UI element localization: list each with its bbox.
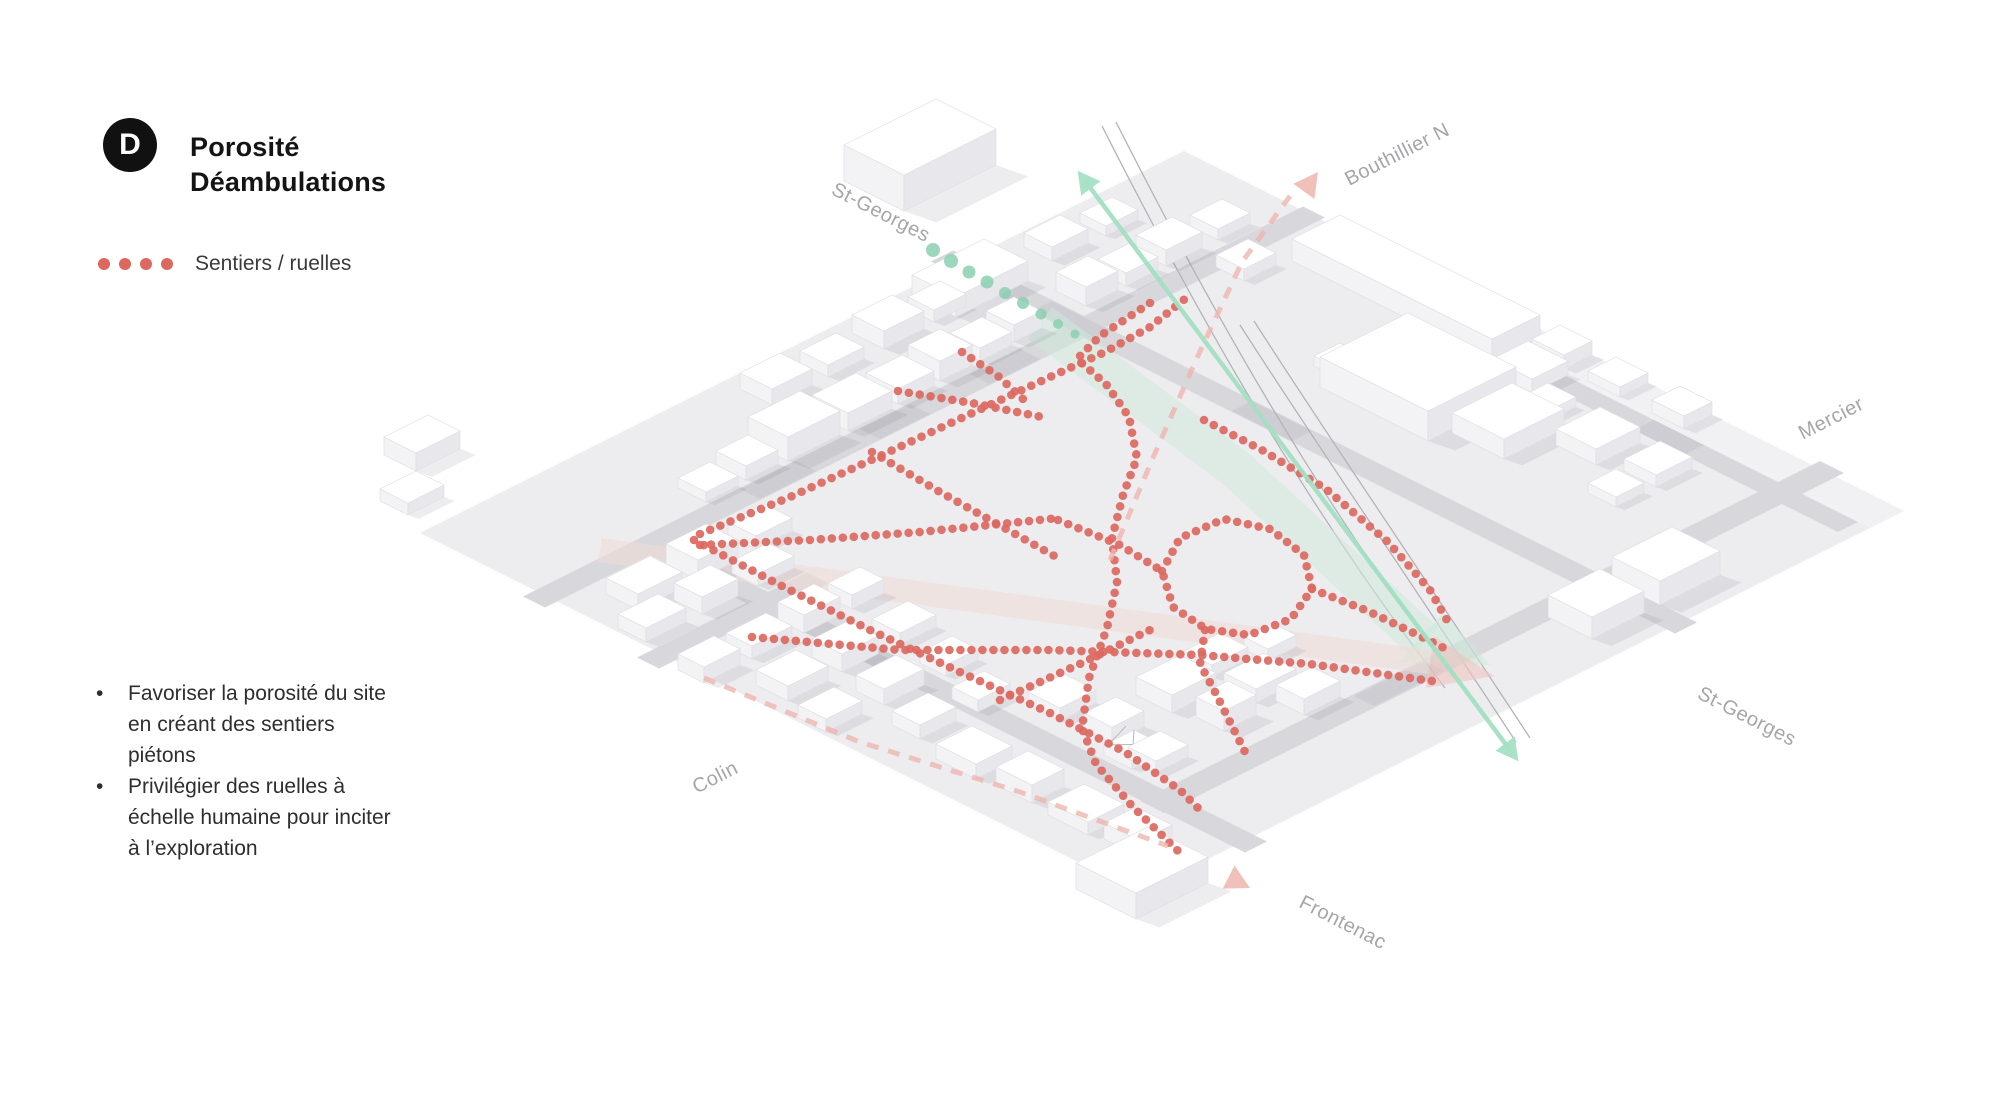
sentier-dotted-path xyxy=(1275,657,1284,666)
sentier-dotted-path xyxy=(1128,428,1137,437)
sentier-dotted-path xyxy=(1126,800,1135,809)
sentier-dotted-path xyxy=(1180,295,1189,304)
sentier-dotted-path xyxy=(1235,737,1244,746)
sentier-dotted-path xyxy=(882,530,891,539)
sentier-dotted-path xyxy=(707,540,716,549)
sentier-dotted-path xyxy=(817,478,826,487)
sentier-dotted-path xyxy=(866,626,875,635)
sentier-dotted-path xyxy=(893,529,902,538)
sentier-dotted-path xyxy=(802,638,811,647)
sentier-dotted-path xyxy=(781,636,790,645)
sentier-dotted-path xyxy=(1338,597,1347,606)
sentier-dotted-path xyxy=(860,532,869,541)
sentier-dotted-path xyxy=(890,645,899,654)
sentier-dotted-path xyxy=(1404,561,1413,570)
sentier-dotted-path xyxy=(1253,655,1262,664)
sentier-dotted-path xyxy=(1112,783,1121,792)
sentier-dotted-path xyxy=(1082,694,1091,703)
sentier-dotted-path xyxy=(1212,518,1221,527)
sentier-dotted-path xyxy=(1281,617,1290,626)
sentier-dotted-path xyxy=(1369,609,1378,618)
teal-path-dot xyxy=(999,287,1011,299)
sentier-dotted-path xyxy=(806,536,815,545)
sentier-dotted-path xyxy=(1057,368,1066,377)
sentier-dotted-path xyxy=(1104,739,1113,748)
sentier-dotted-path xyxy=(947,418,956,427)
sentier-dotted-path xyxy=(1229,431,1238,440)
sentier-dotted-path xyxy=(1230,727,1239,736)
sentier-dotted-path xyxy=(1121,648,1130,657)
sentier-dotted-path xyxy=(1126,418,1135,427)
sentier-dotted-path xyxy=(1271,621,1280,630)
sentier-dotted-path xyxy=(1091,758,1100,767)
sentier-dotted-path xyxy=(1047,372,1056,381)
street-label-colin: Colin xyxy=(689,757,742,798)
sentier-dotted-path xyxy=(1134,808,1143,817)
sentier-dotted-path xyxy=(956,646,965,655)
sentier-dotted-path xyxy=(787,586,796,595)
sentier-dotted-path xyxy=(1340,665,1349,674)
sentier-dotted-path xyxy=(1086,655,1095,664)
sentier-dotted-path xyxy=(1091,336,1100,345)
sentier-dotted-path xyxy=(1077,647,1086,656)
sentier-dotted-path xyxy=(1244,520,1253,529)
sentier-dotted-path xyxy=(1078,359,1087,368)
sentier-dotted-path xyxy=(1030,540,1039,549)
sentier-dotted-path xyxy=(1022,646,1031,655)
note-item: • Favoriser la porosité du site en créan… xyxy=(96,678,396,771)
sentier-dotted-path xyxy=(1225,717,1234,726)
sentier-dotted-path xyxy=(1173,846,1182,855)
sentier-dotted-path xyxy=(976,677,985,686)
sentier-dotted-path xyxy=(912,646,921,655)
sentier-dotted-path xyxy=(901,646,910,655)
sentier-dotted-path xyxy=(1286,463,1295,472)
sentier-dotted-path xyxy=(959,523,968,532)
sentier-dotted-path xyxy=(1192,527,1201,536)
sentier-dotted-path xyxy=(981,521,990,530)
sentier-dotted-path xyxy=(1066,664,1075,673)
sentier-dotted-path xyxy=(797,487,806,496)
teal-path-dot xyxy=(1071,330,1080,339)
sentier-dotted-path xyxy=(777,582,786,591)
sentier-dotted-path xyxy=(807,483,816,492)
sentier-dotted-path xyxy=(1116,339,1125,348)
sentier-dotted-path xyxy=(976,360,985,369)
sentier-dotted-path xyxy=(1126,334,1135,343)
sentier-dotted-path xyxy=(1046,709,1055,718)
sentier-dotted-path xyxy=(1169,781,1178,790)
sentier-dotted-path xyxy=(849,533,858,542)
sentier-dotted-path xyxy=(1097,349,1106,358)
sentier-dotted-path xyxy=(1133,756,1142,765)
sentier-dotted-path xyxy=(1159,572,1168,581)
sentier-dotted-path xyxy=(1016,695,1025,704)
sentier-dotted-path xyxy=(1049,551,1058,560)
sentier-dotted-path xyxy=(1196,658,1205,667)
sentier-dotted-path xyxy=(1162,309,1171,318)
sentier-dotted-path xyxy=(757,505,766,514)
sentier-dotted-path xyxy=(1085,673,1094,682)
sentier-dotted-path xyxy=(1109,390,1118,399)
sentier-dotted-path xyxy=(828,534,837,543)
sentier-dotted-path xyxy=(1000,646,1009,655)
sentier-dotted-path xyxy=(846,641,855,650)
sentier-dotted-path xyxy=(1145,626,1154,635)
sentier-dotted-path xyxy=(807,596,816,605)
note-text: Privilégier des ruelles à échelle humain… xyxy=(128,771,396,864)
slide: D Porosité Déambulations Sentiers / ruel… xyxy=(0,0,2000,1104)
sentier-dotted-path xyxy=(1016,687,1025,696)
sentier-dotted-path xyxy=(1011,530,1020,539)
sentier-dotted-path xyxy=(1143,649,1152,658)
sentier-dotted-path xyxy=(970,522,979,531)
sentier-dotted-path xyxy=(1197,647,1206,656)
street-label-st-georges-bottom: St-Georges xyxy=(1694,683,1800,751)
sentier-dotted-path xyxy=(1105,775,1114,784)
sentier-dotted-path xyxy=(836,611,845,620)
street-label-mercier: Mercier xyxy=(1795,393,1868,444)
sentier-dotted-path xyxy=(915,528,924,537)
sentier-dotted-path xyxy=(1014,518,1023,527)
sentier-dotted-path xyxy=(1406,674,1415,683)
sentier-dotted-path xyxy=(937,394,946,403)
sentier-dotted-path xyxy=(718,540,727,549)
sentier-dotted-path xyxy=(1026,682,1035,691)
sentier-dotted-path xyxy=(1357,515,1366,524)
sentier-dotted-path xyxy=(1065,719,1074,728)
sentier-dotted-path xyxy=(1268,452,1277,461)
sentier-dotted-path xyxy=(1240,630,1249,639)
sentier-dotted-path xyxy=(1110,523,1119,532)
sentier-dotted-path xyxy=(1044,646,1053,655)
teal-path-dot xyxy=(1053,319,1063,329)
sentier-dotted-path xyxy=(1442,615,1451,624)
sentier-dotted-path xyxy=(1087,747,1096,756)
sentier-dotted-path xyxy=(1084,344,1093,353)
sentier-dotted-path xyxy=(1084,528,1093,537)
sentier-dotted-path xyxy=(1258,446,1267,455)
sentier-dotted-path xyxy=(1328,593,1337,602)
sentier-dotted-path xyxy=(1152,563,1161,572)
sentier-dotted-path xyxy=(827,606,836,615)
dotted-path-icon xyxy=(98,258,173,270)
green-arrowhead-icon xyxy=(1496,736,1519,761)
sentier-dotted-path xyxy=(777,496,786,505)
sentier-dotted-path xyxy=(970,399,979,408)
sentier-dotted-path xyxy=(1374,529,1383,538)
sentier-dotted-path xyxy=(1115,540,1124,549)
sentier-dotted-path xyxy=(1242,654,1251,663)
sentier-dotted-path xyxy=(1124,546,1133,555)
sentier-dotted-path xyxy=(1286,658,1295,667)
sentier-dotted-path xyxy=(784,537,793,546)
sentier-dotted-path xyxy=(1025,517,1034,526)
sentier-dotted-path xyxy=(1106,610,1115,619)
sentier-dotted-path xyxy=(1109,323,1118,332)
teal-path-dot xyxy=(981,276,994,289)
sentier-dotted-path xyxy=(1362,668,1371,677)
sentier-dotted-path xyxy=(1124,750,1133,759)
sentier-dotted-path xyxy=(1064,520,1073,529)
sentier-dotted-path xyxy=(1115,399,1124,408)
sentier-dotted-path xyxy=(996,686,1005,695)
sentier-dotted-path xyxy=(1037,377,1046,386)
sentier-dotted-path xyxy=(857,460,866,469)
sentier-dotted-path xyxy=(1231,654,1240,663)
sentier-dotted-path xyxy=(1136,328,1145,337)
sentier-dotted-path xyxy=(1027,381,1036,390)
sentier-dotted-path xyxy=(927,428,936,437)
sentier-dotted-path xyxy=(1160,775,1169,784)
sentier-dotted-path xyxy=(1218,627,1227,636)
sentier-dotted-path xyxy=(846,616,855,625)
sentier-dotted-path xyxy=(716,521,725,530)
sentier-dotted-path xyxy=(1067,363,1076,372)
sentier-dotted-path xyxy=(787,492,796,501)
sentier-dotted-path xyxy=(963,503,972,512)
sentier-dotted-path xyxy=(1419,578,1428,587)
sentier-dotted-path xyxy=(1250,629,1259,638)
sentier-dotted-path xyxy=(1188,615,1197,624)
sentier-dotted-path xyxy=(871,531,880,540)
sentier-dotted-path xyxy=(747,509,756,518)
sentier-dotted-path xyxy=(1089,662,1098,671)
sentier-dotted-path xyxy=(1166,593,1175,602)
sentier-dotted-path xyxy=(948,396,957,405)
sentier-dotted-path xyxy=(729,539,738,548)
sentier-dotted-path xyxy=(986,681,995,690)
sentier-dotted-path xyxy=(1126,471,1135,480)
sentier-dotted-path xyxy=(967,409,976,418)
sentier-dotted-path xyxy=(1373,669,1382,678)
sentier-dotted-path xyxy=(1349,508,1358,517)
sentier-dotted-path xyxy=(1431,596,1440,605)
sentier-dotted-path xyxy=(817,601,826,610)
sentier-dotted-path xyxy=(1222,515,1231,524)
sentier-dotted-path xyxy=(868,643,877,652)
sentier-dotted-path xyxy=(1010,387,1019,396)
sentier-dotted-path xyxy=(1296,602,1305,611)
sentier-dotted-path xyxy=(1079,727,1088,736)
sentier-dotted-path xyxy=(1274,531,1283,540)
sentier-dotted-path xyxy=(972,508,981,517)
sentier-dotted-path xyxy=(1209,421,1218,430)
sentier-dotted-path xyxy=(1018,395,1027,404)
sentier-dotted-path xyxy=(1174,538,1183,547)
sentier-dotted-path xyxy=(1056,714,1065,723)
sentier-dotted-path xyxy=(817,535,826,544)
sentier-dotted-path xyxy=(1113,513,1122,522)
sentier-dotted-path xyxy=(767,500,776,509)
sentier-dotted-path xyxy=(706,526,715,535)
sentier-dotted-path xyxy=(1308,660,1317,669)
sentier-dotted-path xyxy=(1163,583,1172,592)
sentier-dotted-path xyxy=(1024,410,1033,419)
sentier-dotted-path xyxy=(1002,380,1011,389)
sentier-dotted-path xyxy=(1428,677,1437,686)
sentier-dotted-path xyxy=(1199,637,1208,646)
sentier-dotted-path xyxy=(887,459,896,468)
section-badge: D xyxy=(103,118,157,172)
sentier-dotted-path xyxy=(1163,557,1172,566)
sentier-dotted-path xyxy=(835,640,844,649)
sentier-dotted-path xyxy=(934,487,943,496)
sentier-dotted-path xyxy=(1182,531,1191,540)
sentier-dotted-path xyxy=(1127,311,1136,320)
legend-label: Sentiers / ruelles xyxy=(195,252,351,276)
sentier-dotted-path xyxy=(868,448,877,457)
sentier-dotted-path xyxy=(1125,635,1134,644)
pink-dashed-arrowhead-icon xyxy=(1223,866,1250,889)
sentier-dotted-path xyxy=(1011,646,1020,655)
page-title: Porosité Déambulations xyxy=(190,130,386,200)
sentier-dotted-path xyxy=(1332,494,1341,503)
sentier-dotted-path xyxy=(1134,552,1143,561)
sentier-dotted-path xyxy=(992,519,1001,528)
sentier-dotted-path xyxy=(1216,697,1225,706)
sentier-dotted-path xyxy=(1239,436,1248,445)
sentier-dotted-path xyxy=(1055,646,1064,655)
sentier-dotted-path xyxy=(978,646,987,655)
sentier-dotted-path xyxy=(748,633,757,642)
sentier-dotted-path xyxy=(1046,673,1055,682)
sentier-dotted-path xyxy=(1201,626,1210,635)
teal-path-dot xyxy=(1036,309,1047,320)
sentier-dotted-path xyxy=(956,668,965,677)
sentier-dotted-path xyxy=(1036,704,1045,713)
sentier-dotted-path xyxy=(985,366,994,375)
sentier-dotted-path xyxy=(1130,439,1139,448)
sentier-dotted-path xyxy=(1308,585,1317,594)
sentier-dotted-path xyxy=(967,646,976,655)
sentier-dotted-path xyxy=(1103,621,1112,630)
sentier-dotted-path xyxy=(748,566,757,575)
sentier-dotted-path xyxy=(907,437,916,446)
sentier-dotted-path xyxy=(1006,691,1015,700)
sentier-dotted-path xyxy=(982,514,991,523)
sentier-dotted-path xyxy=(904,529,913,538)
sentier-dotted-path xyxy=(917,432,926,441)
sentier-dotted-path xyxy=(762,538,771,547)
page-title-line1: Porosité xyxy=(190,130,386,165)
sentier-dotted-path xyxy=(937,526,946,535)
sentier-dotted-path xyxy=(1083,683,1092,692)
sentier-dotted-path xyxy=(1096,642,1105,651)
sentier-dotted-path xyxy=(923,646,932,655)
sentier-dotted-path xyxy=(948,524,957,533)
sentier-dotted-path xyxy=(1202,522,1211,531)
teal-path-dot xyxy=(944,254,958,268)
sentier-dotted-path xyxy=(944,492,953,501)
sentier-dotted-path xyxy=(1324,486,1333,495)
sentier-dotted-path xyxy=(1187,650,1196,659)
sentier-dotted-path xyxy=(1106,645,1115,654)
sentier-dotted-path xyxy=(957,414,966,423)
sentier-dotted-path xyxy=(879,644,888,653)
sentier-dotted-path xyxy=(740,539,749,548)
note-text: Favoriser la porosité du site en créant … xyxy=(128,678,396,771)
sentier-dotted-path xyxy=(959,397,968,406)
sentier-dotted-path xyxy=(1193,803,1202,812)
sentier-dotted-path xyxy=(1211,688,1220,697)
sentier-dotted-path xyxy=(915,390,924,399)
sentier-dotted-path xyxy=(1001,524,1010,533)
sentier-dotted-path xyxy=(751,538,760,547)
sentier-dotted-path xyxy=(1329,663,1338,672)
sentier-dotted-path xyxy=(1115,640,1124,649)
sentier-dotted-path xyxy=(906,470,915,479)
sentier-dotted-path xyxy=(996,696,1005,705)
page-title-line2: Déambulations xyxy=(190,165,386,200)
sentier-dotted-path xyxy=(905,388,914,397)
sentier-dotted-path xyxy=(1349,601,1358,610)
street-label-bouthillier-n: Bouthillier N xyxy=(1341,119,1453,191)
sentier-dotted-path xyxy=(1395,672,1404,681)
teal-path-dot xyxy=(1017,297,1029,309)
sentier-dotted-path xyxy=(1229,628,1238,637)
sentier-dotted-path xyxy=(1390,545,1399,554)
sentier-dotted-path xyxy=(1185,795,1194,804)
sentier-dotted-path xyxy=(1087,354,1096,363)
sentier-dotted-path xyxy=(1111,567,1120,576)
sentier-dotted-path xyxy=(1384,671,1393,680)
sentier-dotted-path xyxy=(1151,768,1160,777)
sentier-dotted-path xyxy=(1026,700,1035,709)
sentier-dotted-path xyxy=(1397,553,1406,562)
sentier-dotted-path xyxy=(1102,381,1111,390)
sentier-dotted-path xyxy=(1249,441,1258,450)
sentier-dotted-path xyxy=(1108,599,1117,608)
sentier-dotted-path xyxy=(1341,501,1350,510)
sentier-dotted-path xyxy=(1260,625,1269,634)
sentier-dotted-path xyxy=(1119,791,1128,800)
sentier-dotted-path xyxy=(1116,502,1125,511)
bullet-icon: • xyxy=(96,678,128,771)
sentier-dotted-path xyxy=(1437,605,1446,614)
sentier-dotted-path xyxy=(1056,669,1065,678)
sentier-dotted-path xyxy=(1302,593,1311,602)
teal-path-dot xyxy=(926,243,940,257)
sentier-dotted-path xyxy=(1113,578,1122,587)
sentier-dotted-path xyxy=(1110,588,1119,597)
sentier-dotted-path xyxy=(946,663,955,672)
sentier-dotted-path xyxy=(1220,707,1229,716)
sentier-dotted-path xyxy=(897,442,906,451)
sentier-dotted-path xyxy=(1132,649,1141,658)
sentier-dotted-path xyxy=(936,658,945,667)
sentier-dotted-path xyxy=(1426,586,1435,595)
sentier-dotted-path xyxy=(915,476,924,485)
sentier-dotted-path xyxy=(1079,716,1088,725)
sentier-dotted-path xyxy=(1366,522,1375,531)
sentier-dotted-path xyxy=(1409,628,1418,637)
sentier-dotted-path xyxy=(1145,323,1154,332)
sentier-dotted-path xyxy=(1290,611,1299,620)
sentier-dotted-path xyxy=(1233,518,1242,527)
sentier-dotted-path xyxy=(1359,605,1368,614)
sentier-dotted-path xyxy=(813,638,822,647)
sentier-dotted-path xyxy=(1300,551,1309,560)
sentier-dotted-path xyxy=(1142,815,1151,824)
sentier-dotted-path xyxy=(994,372,1003,381)
sentier-dotted-path xyxy=(1168,547,1177,556)
sentier-dotted-path xyxy=(894,387,903,396)
sentier-dotted-path xyxy=(926,654,935,663)
sentier-dotted-path xyxy=(980,401,989,410)
sentier-dotted-path xyxy=(886,635,895,644)
sentier-dotted-path xyxy=(1020,535,1029,544)
